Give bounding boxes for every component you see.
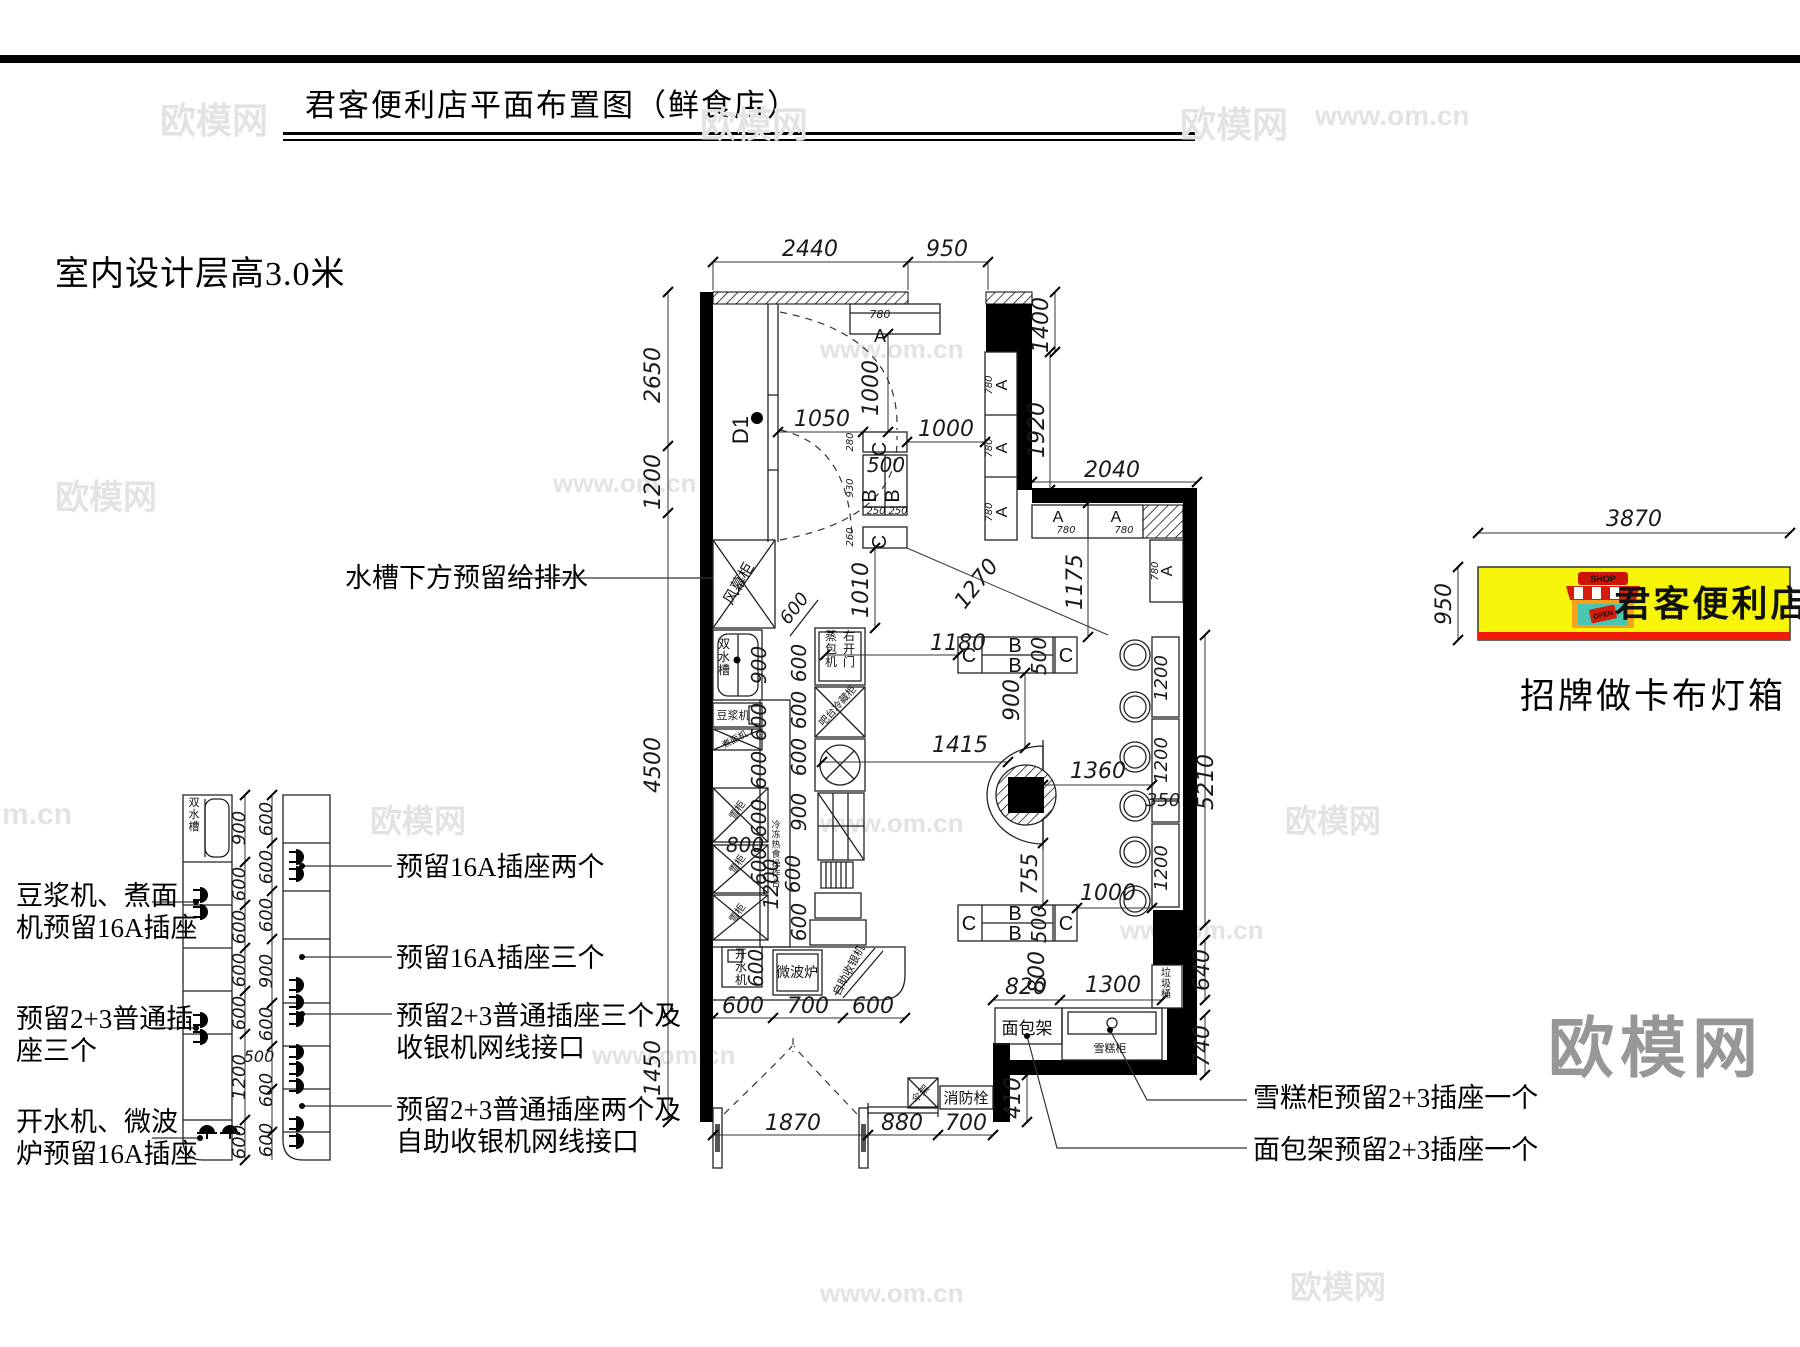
plan-label: C <box>869 535 891 549</box>
dim-label: 600 <box>229 996 250 1030</box>
dim-label: 1000 <box>1080 881 1136 906</box>
dim-label: 600 <box>744 949 768 987</box>
dim-label: 950 <box>926 237 968 262</box>
dim-label: 2040 <box>1084 458 1140 483</box>
signboard-caption: 招牌做卡布灯箱 <box>1520 668 1786 719</box>
dim-label: 260 <box>845 527 856 546</box>
plan-label: 垃圾桶 <box>1161 966 1171 1001</box>
annotation-callout: 预留2+3普通插座两个及自助收银机网线接口 <box>396 1094 681 1159</box>
plan-label: 雪柜 <box>726 798 748 822</box>
dim-label: 600 <box>747 703 771 741</box>
dim-label: 600 <box>229 910 250 944</box>
plan-label: 微波炉 <box>776 964 818 980</box>
plan-label: 吧台冷藏柜 <box>816 683 859 729</box>
plan-label: B <box>1008 655 1021 677</box>
dim-label: 800 <box>726 833 764 857</box>
annotation-callout: 预留16A插座三个 <box>396 942 605 974</box>
dim-label: 600 <box>787 644 811 682</box>
plan-label: C <box>1059 645 1073 667</box>
dim-label: 1200 <box>1151 655 1172 701</box>
dim-label: 1270 <box>950 554 1004 614</box>
signboard-store-name: 君客便利店 <box>1614 583 1800 624</box>
dim-label: 2650 <box>641 347 666 403</box>
dim-label: 1180 <box>930 631 986 656</box>
dim-label: 250 <box>866 506 885 517</box>
dim-label: 1200 <box>1151 845 1172 891</box>
annotation-callout: 开水机、微波炉预留16A插座 <box>16 1106 198 1171</box>
dim-label: 250 <box>888 506 907 517</box>
plan-label: A <box>1159 565 1176 576</box>
plan-label: A <box>1111 509 1122 526</box>
plan-label: A <box>994 442 1011 453</box>
dim-label: 780 <box>870 308 891 321</box>
dim-label: 900 <box>747 646 771 684</box>
annotation-callout: 预留16A插座两个 <box>396 851 605 883</box>
dim-label: 1920 <box>1025 402 1050 458</box>
dim-label: 600 <box>787 738 811 776</box>
plan-label: B <box>882 489 904 502</box>
dim-label: 1200 <box>641 454 666 510</box>
dim-label: 600 <box>852 994 894 1019</box>
plan-label: B <box>1008 635 1021 657</box>
plan-label: 风幕柜 <box>720 560 757 607</box>
dim-label: 410 <box>1001 1077 1026 1119</box>
annotation-callout: 水槽下方预留给排水 <box>345 562 588 594</box>
page: 君客便利店平面布置图（鲜食店） 室内设计层高3.0米 欧模网欧模网欧模网www.… <box>0 0 1800 1347</box>
plan-label: 雪糕柜 <box>1094 1041 1127 1055</box>
dim-label: 880 <box>881 1111 923 1136</box>
plan-label: A <box>874 326 886 346</box>
dim-label: 600 <box>256 1073 277 1107</box>
plan-label: B <box>859 489 881 502</box>
dim-label: 1400 <box>1029 297 1054 353</box>
checkout-counter-1 <box>815 893 861 918</box>
shop-sign-text: SHOP <box>1590 574 1616 584</box>
plan-label: 伞架 <box>909 1082 932 1106</box>
dim-label: 800 <box>1025 951 1050 993</box>
dim-label: 740 <box>1190 1025 1215 1067</box>
annotation-callout: 面包架预留2+3插座一个 <box>1253 1134 1538 1166</box>
plan-label: 蒸包机 <box>825 629 837 669</box>
dim-label: 600 <box>256 898 277 932</box>
dim-label: 1010 <box>849 562 874 618</box>
annotation-callout: 雪糕柜预留2+3插座一个 <box>1253 1082 1538 1114</box>
dim-label: 600 <box>781 855 805 893</box>
plan-label: C <box>1059 913 1073 935</box>
plan-label: 双水槽 <box>718 637 730 677</box>
annotation-callout: 预留2+3普通插座三个 <box>16 1003 193 1068</box>
cooker-unit <box>815 739 865 791</box>
dim-label: 900 <box>256 954 277 988</box>
dim-label: 600 <box>229 1125 250 1159</box>
dim-label: 600 <box>256 802 277 836</box>
dim-label: 1175 <box>1063 554 1088 610</box>
dim-label: 600 <box>229 867 250 901</box>
dim-label: 1300 <box>1085 973 1141 998</box>
dim-label: 700 <box>945 1111 987 1136</box>
dim-label: 930 <box>845 478 856 497</box>
signboard: SHOP OPEN 君客便利店 <box>1478 567 1800 640</box>
dim-label: 900 <box>229 811 250 845</box>
annotation-callout: 预留2+3普通插座三个及收银机网线接口 <box>396 1000 681 1065</box>
plan-label: 面包架 <box>1002 1019 1053 1038</box>
dim-label: 640 <box>1190 949 1215 991</box>
dim-label: 600 <box>787 903 811 941</box>
outlet-detail-strip-right <box>283 795 330 1160</box>
dim-label: 1870 <box>765 1111 821 1136</box>
dim-label: 600 <box>256 1007 277 1041</box>
dim-label: 1360 <box>1070 759 1126 784</box>
dim-label: 2440 <box>782 237 838 262</box>
signboard-stripe <box>1478 632 1790 640</box>
dim-label: 1000 <box>918 417 974 442</box>
dim-label: 600 <box>256 1123 277 1157</box>
dim-label: 500 <box>244 1047 275 1066</box>
dim-label: 755 <box>1018 853 1043 895</box>
dim-label: 500 <box>1027 905 1051 943</box>
dim-label: 900 <box>1000 679 1025 721</box>
dim-label: 600 <box>776 589 814 629</box>
dim-label: 780 <box>1114 525 1133 536</box>
dim-label: 1200 <box>759 859 783 910</box>
dim-label: 4500 <box>641 737 666 793</box>
plan-label: 豆浆机 <box>717 708 750 722</box>
dim-label: 1200 <box>1151 737 1172 783</box>
striped-unit <box>821 862 853 888</box>
dim-label: 5210 <box>1194 754 1219 810</box>
dim-label: 3870 <box>1606 507 1662 532</box>
dim-label: 1050 <box>794 407 850 432</box>
dim-label: 950 <box>1432 583 1457 625</box>
dim-label: 600 <box>722 994 764 1019</box>
dim-label: 350 <box>1146 790 1180 811</box>
dim-label: 280 <box>845 432 856 451</box>
tall-cabinet <box>818 793 864 860</box>
plan-label: 煮面机 <box>720 728 749 750</box>
dim-label: 900 <box>787 793 811 831</box>
plan-label: C <box>962 913 976 935</box>
dim-label: 1415 <box>932 733 988 758</box>
round-counter-column <box>987 740 1056 850</box>
plan-label: 双水槽 <box>189 796 200 833</box>
shelf-a-entry <box>850 304 940 334</box>
plan-label: A <box>994 379 1011 390</box>
plan-label: B <box>1008 903 1021 925</box>
plan-label: C <box>962 645 976 667</box>
dim-label: 600 <box>747 799 771 837</box>
plan-label: 消防栓 <box>943 1090 988 1107</box>
dim-label: 1000 <box>859 360 884 416</box>
dim-label: 600 <box>787 691 811 729</box>
checkout-counter-2 <box>810 920 866 945</box>
plan-label: A <box>1053 509 1064 526</box>
dim-label: 500 <box>1027 637 1051 675</box>
annotation-callout: 豆浆机、煮面机预留16A插座 <box>16 880 198 945</box>
dim-label: 700 <box>787 994 829 1019</box>
dim-label: 600 <box>256 850 277 884</box>
dim-label: 600 <box>747 751 771 789</box>
bottom-entrance-door <box>713 1038 868 1168</box>
plan-label: D1 <box>728 416 753 444</box>
plan-label: A <box>994 506 1011 517</box>
dim-label: 780 <box>1056 525 1075 536</box>
dim-label: 600 <box>229 953 250 987</box>
dim-label: 500 <box>867 453 905 477</box>
plan-label: 自助收银机 <box>829 943 867 998</box>
plan-label: B <box>1008 923 1021 945</box>
plan-label: 右开门 <box>843 628 855 669</box>
